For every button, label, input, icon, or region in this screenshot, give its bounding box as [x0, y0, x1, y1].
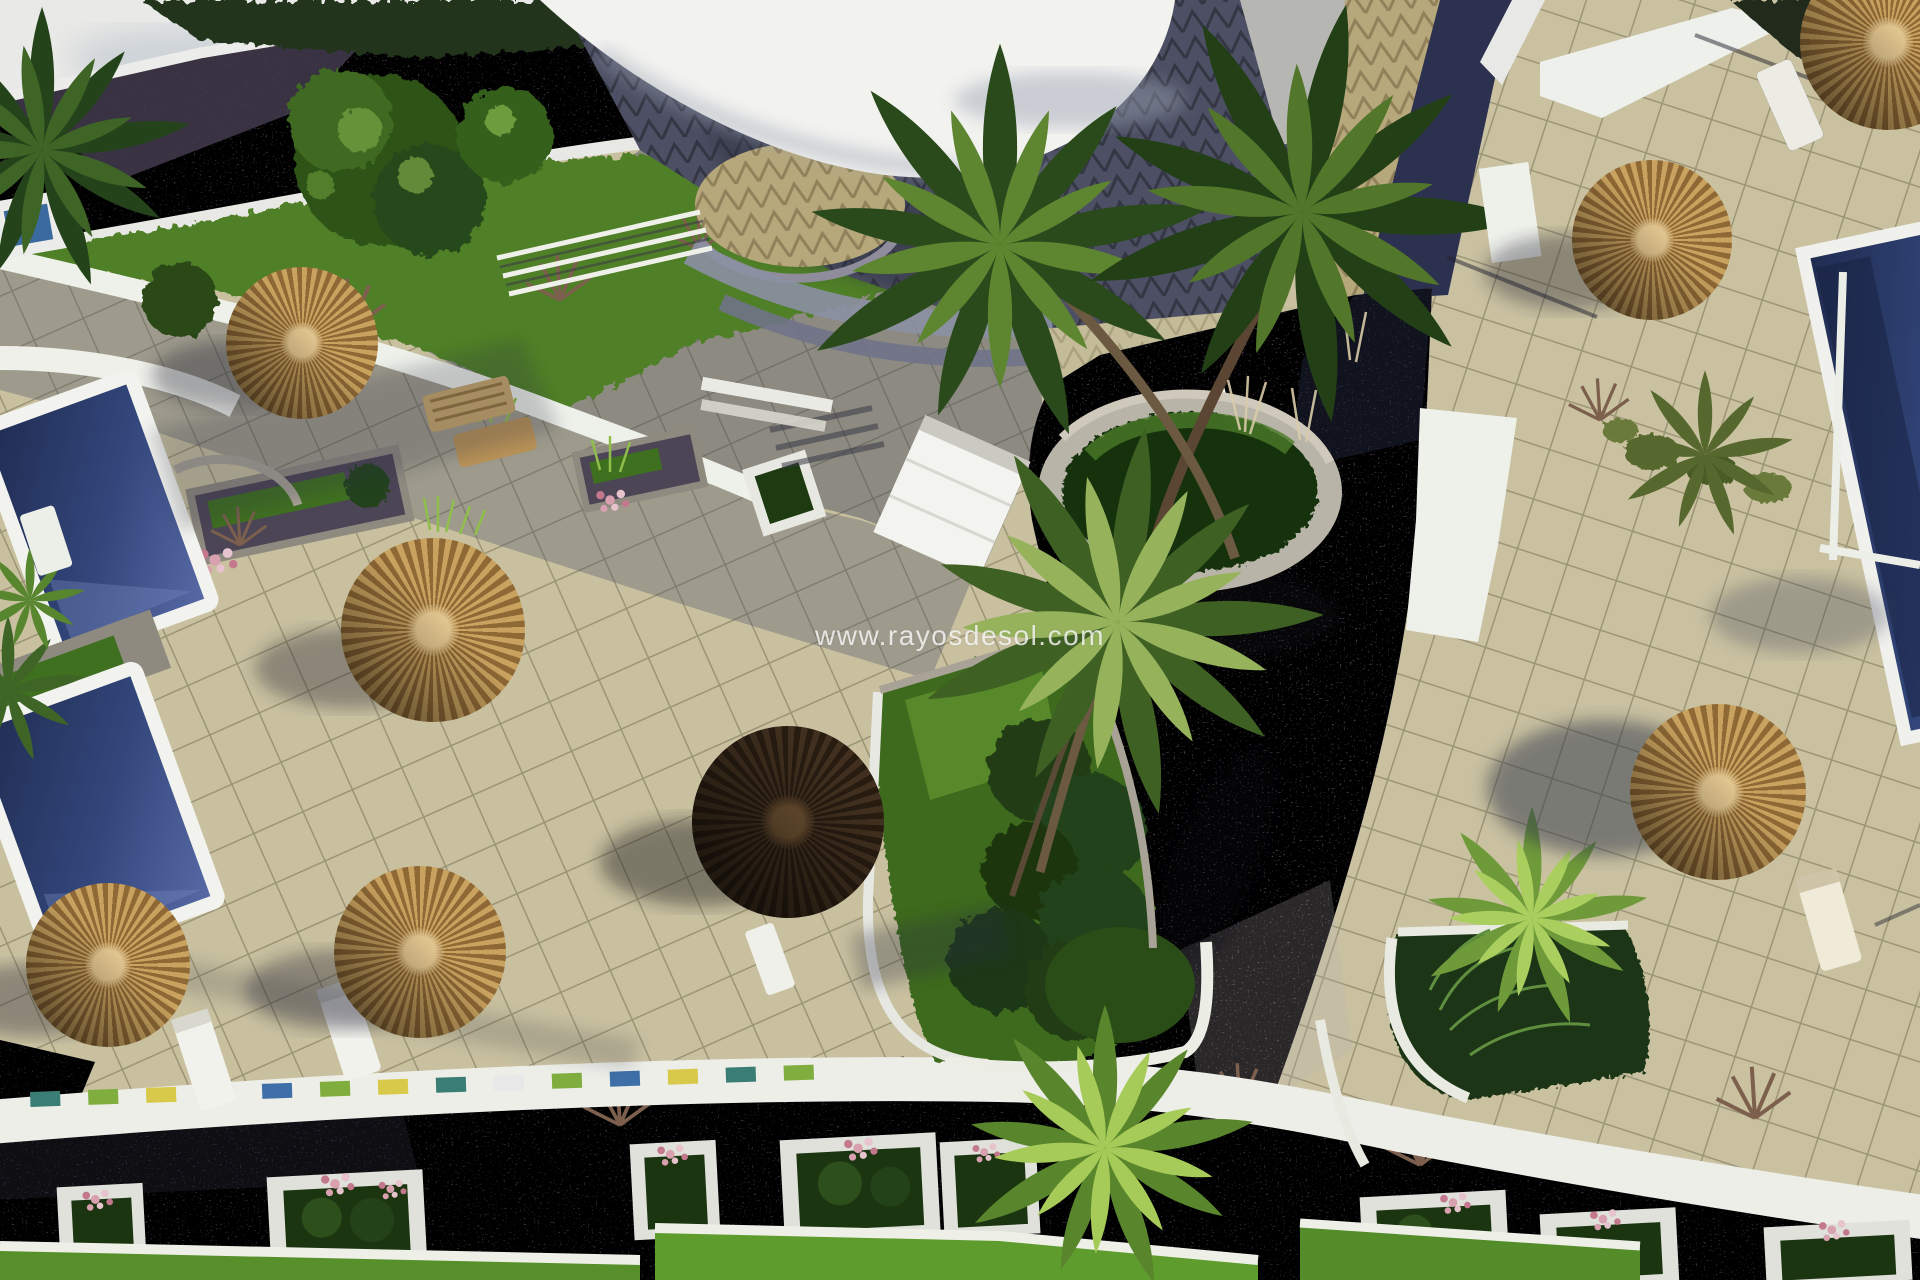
- render-scene: www.rayosdesol.com: [0, 0, 1920, 1280]
- thatch-parasol-8: [1630, 704, 1806, 880]
- thatch-parasol-6: [1572, 160, 1732, 320]
- thatch-parasol-5-shaded: [692, 726, 884, 918]
- thatch-parasol-4: [26, 883, 190, 1047]
- thatch-parasol-2: [341, 538, 525, 722]
- watermark-text: www.rayosdesol.com: [815, 620, 1105, 652]
- thatch-parasol-3: [334, 866, 506, 1038]
- thatch-parasol-1: [226, 267, 378, 419]
